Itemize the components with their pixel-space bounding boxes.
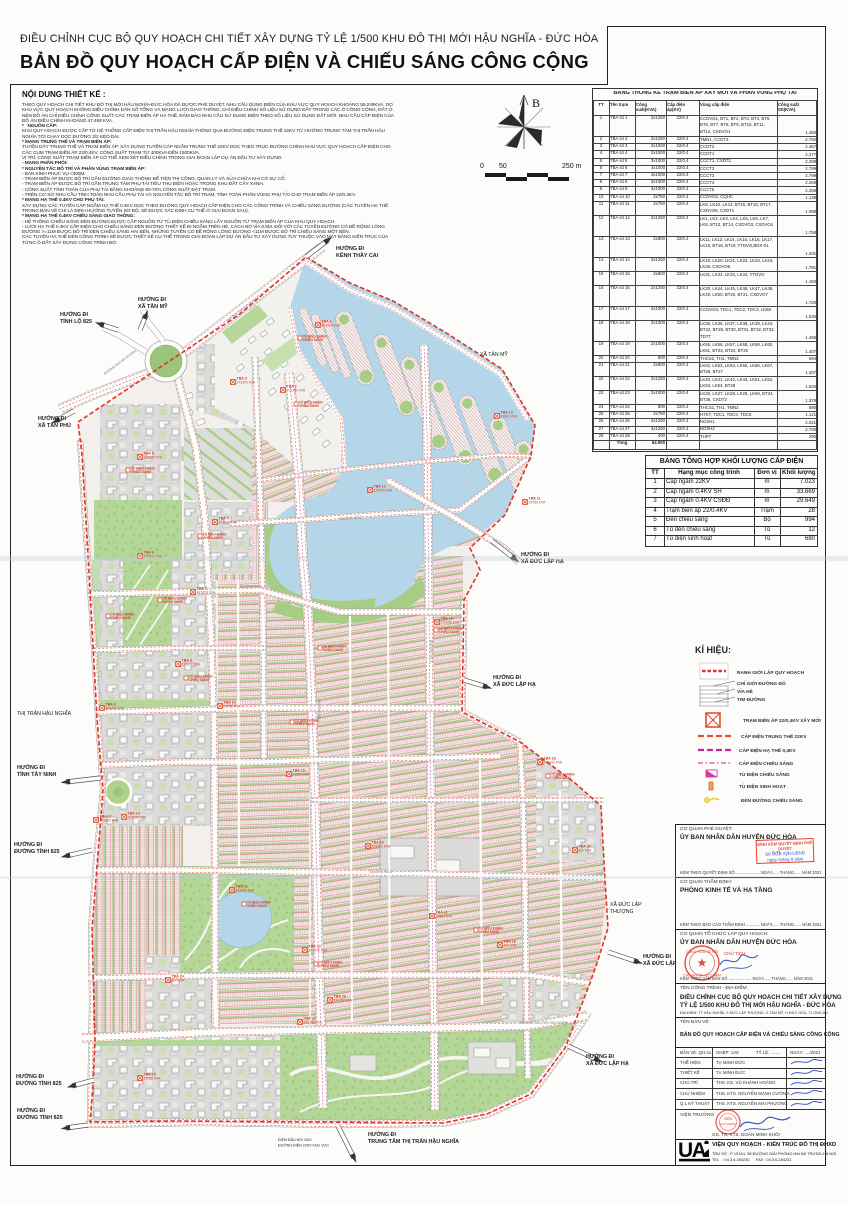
svg-text:XÃ TÂN PHÚ: XÃ TÂN PHÚ (38, 422, 71, 429)
svg-text:4X1000 KVA: 4X1000 KVA (197, 590, 216, 594)
svg-text:TỦ ĐIỆN SINH HOẠT: TỦ ĐIỆN SINH HOẠT (739, 782, 786, 790)
svg-text:HƯỚNG ĐI: HƯỚNG ĐI (17, 1106, 45, 1114)
svg-text:ĐƯỜNG ĐIỆN 22KV KHU VỰC: ĐƯỜNG ĐIỆN 22KV KHU VỰC (278, 1142, 330, 1147)
svg-text:TRUNG TÂM THỊ TRẤN HẬU NGHĨA: TRUNG TÂM THỊ TRẤN HẬU NGHĨA (368, 1138, 459, 1145)
svg-text:CHIẾU SÁNG: CHIẾU SÁNG (303, 337, 324, 342)
svg-text:CÁP ĐIỆN TRUNG THẾ 22KV: CÁP ĐIỆN TRUNG THẾ 22KV (741, 732, 807, 740)
svg-text:TỈNH LỘ 825: TỈNH LỘ 825 (60, 317, 92, 325)
svg-text:XÃ TÂN MỸ: XÃ TÂN MỸ (138, 303, 168, 310)
svg-text:CHIẾU SÁNG: CHIẾU SÁNG (551, 775, 572, 780)
svg-text:HƯỚNG ĐI: HƯỚNG ĐI (16, 1072, 44, 1080)
svg-text:TRẠM BIẾN ÁP 22/0,4KV XÂY MỚI: TRẠM BIẾN ÁP 22/0,4KV XÂY MỚI (743, 716, 821, 724)
svg-text:CHIẾU SÁNG: CHIẾU SÁNG (295, 721, 316, 726)
svg-text:HƯỚNG ĐI: HƯỚNG ĐI (60, 310, 88, 318)
svg-text:2X800 KVA: 2X800 KVA (436, 914, 454, 918)
svg-text:2X1000 KVA: 2X1000 KVA (372, 844, 391, 848)
svg-text:2X1250 KVA: 2X1250 KVA (287, 388, 306, 392)
svg-text:400 KVA: 400 KVA (504, 943, 518, 947)
svg-text:ĐÈN ĐƯỜNG CHIẾU SÁNG: ĐÈN ĐƯỜNG CHIẾU SÁNG (741, 796, 803, 804)
svg-text:ĐƯỜNG SỐ 8: ĐƯỜNG SỐ 8 (370, 869, 392, 874)
svg-text:HƯỚNG ĐI: HƯỚNG ĐI (643, 952, 671, 960)
svg-text:HƯỚNG ĐI: HƯỚNG ĐI (17, 763, 45, 771)
svg-text:2X1250 KVA: 2X1250 KVA (236, 888, 255, 892)
svg-text:3X1000 KVA: 3X1000 KVA (182, 662, 201, 666)
svg-text:2X1250 KVA: 2X1250 KVA (374, 488, 393, 492)
svg-text:2X800 KVA: 2X800 KVA (293, 772, 311, 776)
svg-text:2X750 KVA: 2X750 KVA (224, 704, 242, 708)
svg-text:2X750 KVA: 2X750 KVA (529, 500, 547, 504)
svg-text:HƯỚNG ĐI: HƯỚNG ĐI (14, 840, 42, 848)
svg-text:QUY HOẠCH: QUY HOẠCH (720, 1122, 737, 1126)
svg-text:CHIẾU SÁNG: CHIẾU SÁNG (131, 469, 152, 474)
svg-text:ĐƯỜNG MAI BÁ HƯƠNG: ĐƯỜNG MAI BÁ HƯƠNG (103, 347, 138, 375)
svg-text:CỘNG HÒA XÃ HỘI: CỘNG HÒA XÃ HỘI (686, 949, 719, 954)
svg-text:ĐƯỜNG SỐ 2: ĐƯỜNG SỐ 2 (240, 584, 262, 589)
svg-text:RANH GIỚI LẬP QUY HOẠCH: RANH GIỚI LẬP QUY HOẠCH (737, 668, 805, 676)
svg-text:XÃ TÂN MỸ: XÃ TÂN MỸ (480, 351, 508, 358)
svg-text:CHIẾU SÁNG: CHIẾU SÁNG (163, 599, 184, 604)
svg-text:2X1250 KVA: 2X1250 KVA (334, 998, 353, 1002)
svg-text:VỈA HÈ: VỈA HÈ (737, 687, 754, 695)
svg-text:UA: UA (679, 1140, 707, 1162)
svg-text:800 KVA: 800 KVA (172, 978, 186, 982)
svg-text:CHIẾU SÁNG: CHIẾU SÁNG (323, 647, 344, 652)
svg-text:CÁP ĐIỆN HẠ THẾ 0,4KV: CÁP ĐIỆN HẠ THẾ 0,4KV (739, 746, 796, 754)
svg-text:CHIẾU SÁNG: CHIẾU SÁNG (319, 963, 340, 968)
svg-text:CÁP ĐIỆN CHIẾU SÁNG: CÁP ĐIỆN CHIẾU SÁNG (739, 759, 794, 767)
svg-text:XÃ ĐỨC LẬP HẠ: XÃ ĐỨC LẬP HẠ (586, 1060, 629, 1067)
svg-text:CHỦ TỊCH: CHỦ TỊCH (724, 950, 745, 956)
svg-text:3X1000 KVA: 3X1000 KVA (219, 520, 238, 524)
svg-text:XÃ ĐỨC LẬP HẠ: XÃ ĐỨC LẬP HẠ (493, 681, 536, 688)
svg-text:HƯỚNG ĐI: HƯỚNG ĐI (368, 1130, 396, 1138)
svg-text:CHIẾU SÁNG: CHIẾU SÁNG (247, 903, 268, 908)
svg-text:CHIẾU SÁNG: CHIẾU SÁNG (479, 929, 500, 934)
svg-text:TỈNH TÂY NINH: TỈNH TÂY NINH (17, 771, 57, 778)
svg-text:CHỈ GIỚI ĐƯỜNG ĐỎ: CHỈ GIỚI ĐƯỜNG ĐỎ (737, 679, 786, 687)
svg-text:800 KVA: 800 KVA (579, 848, 593, 852)
svg-text:2X1000 KVA: 2X1000 KVA (544, 760, 563, 764)
svg-text:2X800 KVA: 2X800 KVA (501, 414, 519, 418)
svg-text:CHIẾU SÁNG: CHIẾU SÁNG (203, 535, 224, 540)
svg-text:THỊ TRẤN HẬU NGHĨA: THỊ TRẤN HẬU NGHĨA (17, 710, 72, 717)
svg-text:2X1250 KVA: 2X1250 KVA (128, 815, 147, 819)
svg-text:2X1500 KVA: 2X1500 KVA (144, 455, 163, 459)
svg-text:HƯỚNG ĐI: HƯỚNG ĐI (138, 295, 166, 303)
svg-text:HƯỚNG ĐI: HƯỚNG ĐI (586, 1052, 614, 1060)
svg-text:ĐIỂM ĐẤU NỐI VÀO: ĐIỂM ĐẤU NỐI VÀO (278, 1137, 312, 1142)
svg-text:2X1000 KVA: 2X1000 KVA (322, 323, 341, 327)
svg-text:TIM ĐƯỜNG: TIM ĐƯỜNG (737, 695, 766, 703)
svg-text:CHIẾU SÁNG: CHIẾU SÁNG (189, 677, 210, 682)
svg-text:CHIẾU SÁNG: CHIẾU SÁNG (439, 629, 460, 634)
svg-text:ĐƯỜNG NGUYỄN VĂN NHÂM: ĐƯỜNG NGUYỄN VĂN NHÂM (520, 1020, 568, 1025)
svg-text:2X1000 KVA: 2X1000 KVA (100, 818, 119, 822)
svg-text:ĐƯỜNG TỈNH 825: ĐƯỜNG TỈNH 825 (17, 1113, 63, 1121)
svg-text:HƯỚNG ĐI: HƯỚNG ĐI (38, 414, 66, 422)
svg-text:CHIẾU SÁNG: CHIẾU SÁNG (111, 615, 132, 620)
svg-text:VIỆN: VIỆN (724, 1116, 732, 1121)
svg-text:ĐƯỜNG TỈNH 825: ĐƯỜNG TỈNH 825 (16, 1079, 62, 1087)
svg-text:KÊNH THẦY CAI: KÊNH THẦY CAI (336, 251, 379, 259)
svg-text:ĐƯỜNG SỐ 3: ĐƯỜNG SỐ 3 (429, 640, 434, 662)
svg-text:2X1000 KVA: 2X1000 KVA (309, 948, 328, 952)
svg-text:TỦ ĐIỆN CHIẾU SÁNG: TỦ ĐIỆN CHIẾU SÁNG (739, 770, 790, 778)
svg-text:XÃ ĐỨC LẬP: XÃ ĐỨC LẬP (610, 901, 642, 908)
svg-text:HƯỚNG ĐI: HƯỚNG ĐI (493, 673, 521, 681)
svg-text:CHIẾU SÁNG: CHIẾU SÁNG (299, 403, 320, 408)
svg-text:2X1250 KVA: 2X1250 KVA (441, 620, 460, 624)
svg-text:2X1500 KVA: 2X1500 KVA (237, 380, 256, 384)
svg-text:ĐƯỜNG TỈNH 825: ĐƯỜNG TỈNH 825 (14, 847, 60, 855)
svg-text:2X1250 KVA: 2X1250 KVA (304, 1020, 323, 1024)
svg-text:3X1000 KVA: 3X1000 KVA (106, 706, 125, 710)
svg-text:2X750 KVA: 2X750 KVA (144, 1076, 162, 1080)
svg-text:THƯỢNG: THƯỢNG (610, 909, 634, 915)
